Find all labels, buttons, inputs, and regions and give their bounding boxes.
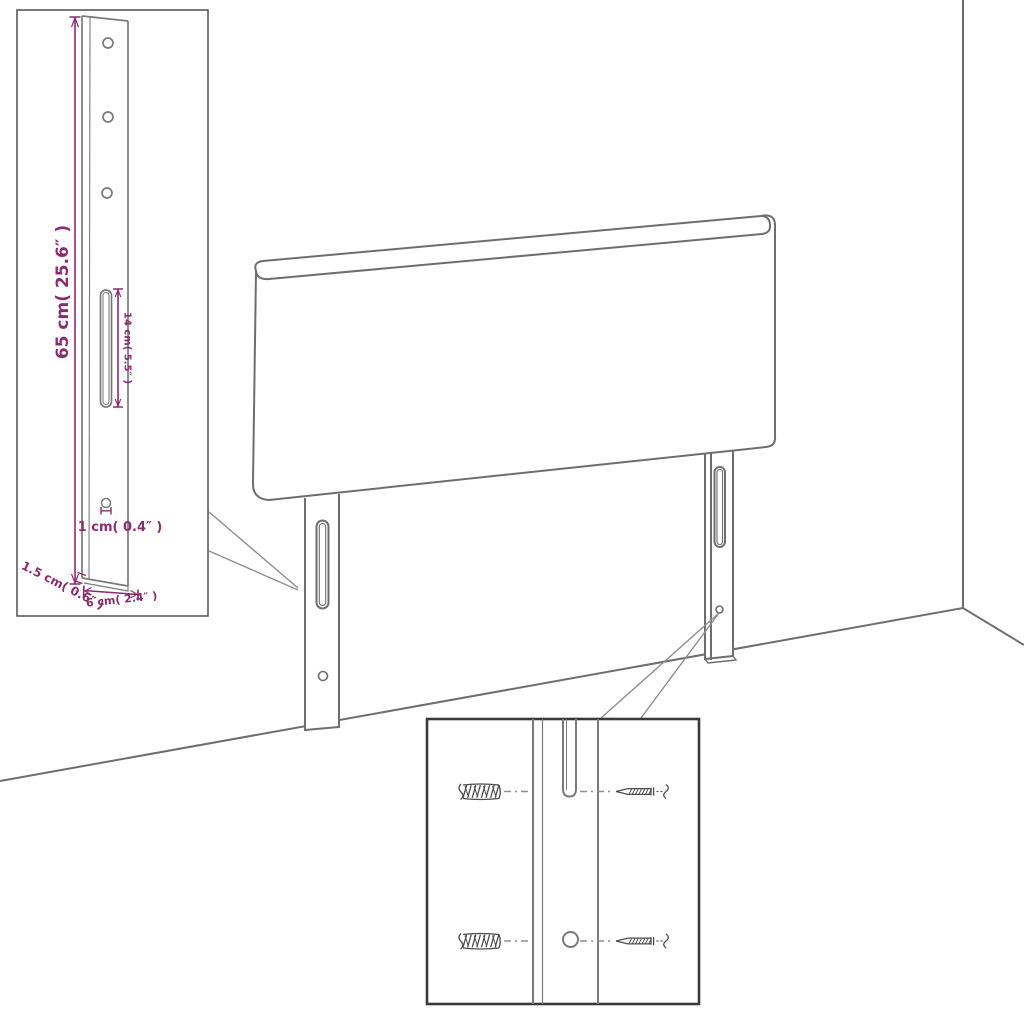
headboard-dimension-diagram: 65 cm( 25.6″ ) 14 cm( 5.5″ ) 1 cm( 0.4″ … [0, 0, 1024, 1024]
leg-height-label: 65 cm( 25.6″ ) [53, 225, 73, 359]
left-inset-callouts [209, 512, 298, 590]
mounting-detail-inset [427, 719, 699, 1004]
right-leg [705, 448, 736, 663]
slot-length-label: 14 cm( 5.5″ ) [122, 312, 133, 384]
hole-diameter-label: 1 cm( 0.4″ ) [78, 520, 163, 535]
diagram-canvas: 65 cm( 25.6″ ) 14 cm( 5.5″ ) 1 cm( 0.4″ … [0, 0, 1024, 1024]
bottom-inset-callouts [601, 613, 719, 718]
callout-line [601, 613, 719, 718]
callout-line [641, 613, 719, 718]
leg-detail-inset: 65 cm( 25.6″ ) 14 cm( 5.5″ ) 1 cm( 0.4″ … [17, 10, 208, 616]
panel-outline [253, 215, 775, 500]
callout-line [209, 512, 298, 588]
callout-line [209, 551, 298, 590]
headboard-panel [253, 215, 775, 500]
left-leg-body [305, 494, 339, 730]
left-leg [305, 494, 339, 730]
